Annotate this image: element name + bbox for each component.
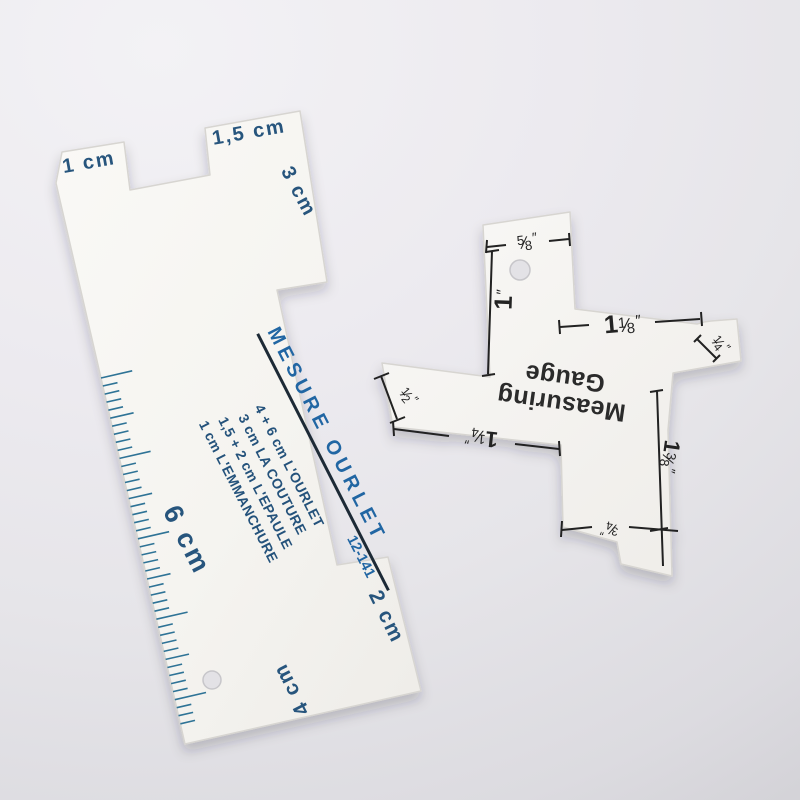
measurement-one-and-one-quarter: 11⁄4″ — [465, 425, 499, 452]
measurement-one-inch: 1″ — [491, 290, 518, 310]
left-gauge-hole — [203, 671, 221, 689]
measurement-five-eighths: 5⁄8″ — [516, 233, 538, 253]
measurement-one-and-one-eighth: 11⁄8″ — [603, 309, 641, 338]
measurement-three-quarters: 3⁄4″ — [601, 519, 620, 537]
right-gauge-hole — [510, 260, 530, 280]
measurement-one-and-three-eighths: 13⁄8″ — [656, 439, 684, 474]
photo-of-sewing-gauges: 1 cm 1,5 cm 3 cm MESURE OURLET 12-141 4 … — [0, 0, 800, 800]
